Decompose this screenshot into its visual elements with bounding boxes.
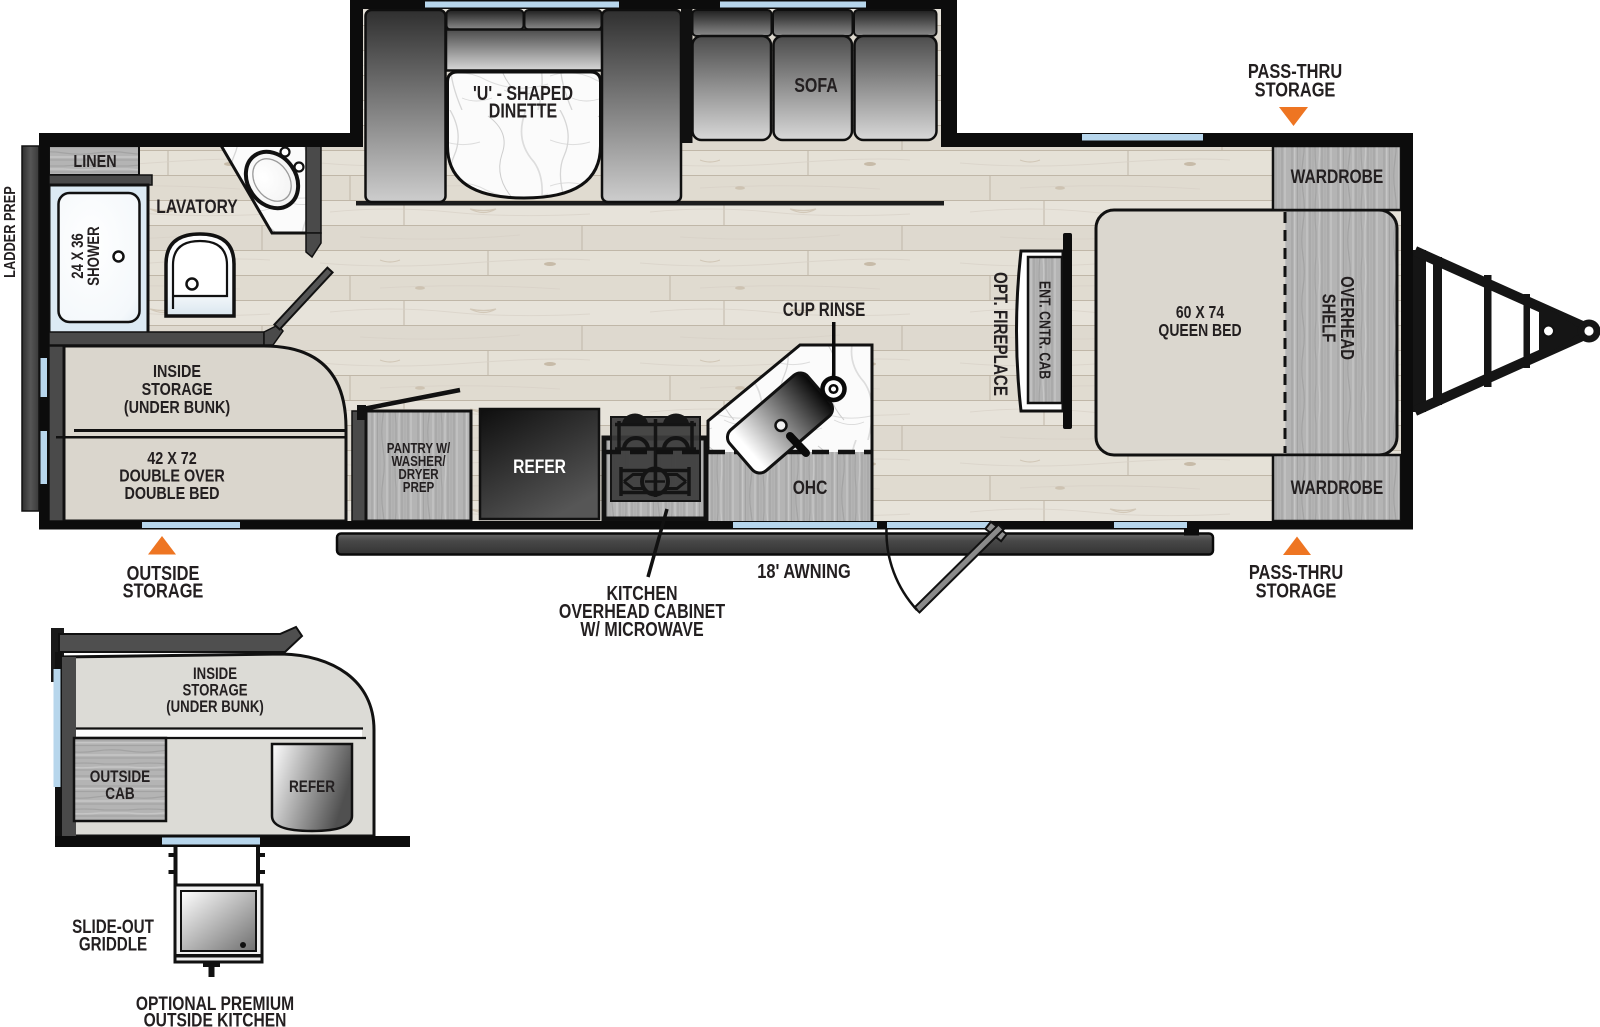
svg-text:REFER: REFER [289, 778, 335, 797]
svg-text:(UNDER BUNK): (UNDER BUNK) [124, 398, 230, 418]
svg-text:STORAGE: STORAGE [142, 380, 213, 400]
svg-text:INSIDE: INSIDE [153, 362, 201, 382]
svg-text:18' AWNING: 18' AWNING [757, 559, 850, 582]
svg-text:STORAGE: STORAGE [1255, 78, 1336, 101]
svg-text:WARDROBE: WARDROBE [1291, 165, 1384, 187]
svg-text:ENT. CNTR. CAB: ENT. CNTR. CAB [1036, 281, 1054, 379]
svg-text:DOUBLE BED: DOUBLE BED [124, 484, 219, 504]
svg-text:SOFA: SOFA [794, 74, 838, 96]
svg-text:PREP: PREP [403, 479, 435, 496]
svg-text:WARDROBE: WARDROBE [1291, 476, 1384, 498]
svg-text:CUP RINSE: CUP RINSE [783, 298, 865, 320]
svg-text:W/ MICROWAVE: W/ MICROWAVE [580, 618, 703, 640]
svg-text:SHOWER: SHOWER [85, 226, 104, 286]
svg-text:LINEN: LINEN [73, 152, 116, 172]
svg-text:DINETTE: DINETTE [489, 100, 557, 122]
svg-text:OUTSIDE: OUTSIDE [90, 768, 150, 787]
svg-text:STORAGE: STORAGE [123, 579, 204, 602]
svg-text:REFER: REFER [513, 455, 566, 477]
svg-text:OPT. FIREPLACE: OPT. FIREPLACE [990, 272, 1012, 396]
svg-text:LAVATORY: LAVATORY [156, 195, 238, 217]
svg-text:STORAGE: STORAGE [1256, 579, 1337, 602]
svg-text:60 X 74: 60 X 74 [1176, 304, 1224, 323]
svg-text:LADDER PREP: LADDER PREP [2, 186, 20, 278]
svg-text:CAB: CAB [105, 785, 134, 804]
svg-text:OHC: OHC [793, 476, 828, 498]
svg-text:SHELF: SHELF [1318, 294, 1339, 343]
svg-text:(UNDER BUNK): (UNDER BUNK) [166, 698, 264, 717]
svg-text:QUEEN BED: QUEEN BED [1158, 322, 1241, 341]
svg-text:GRIDDLE: GRIDDLE [79, 933, 147, 955]
svg-text:OUTSIDE KITCHEN: OUTSIDE KITCHEN [144, 1009, 287, 1027]
